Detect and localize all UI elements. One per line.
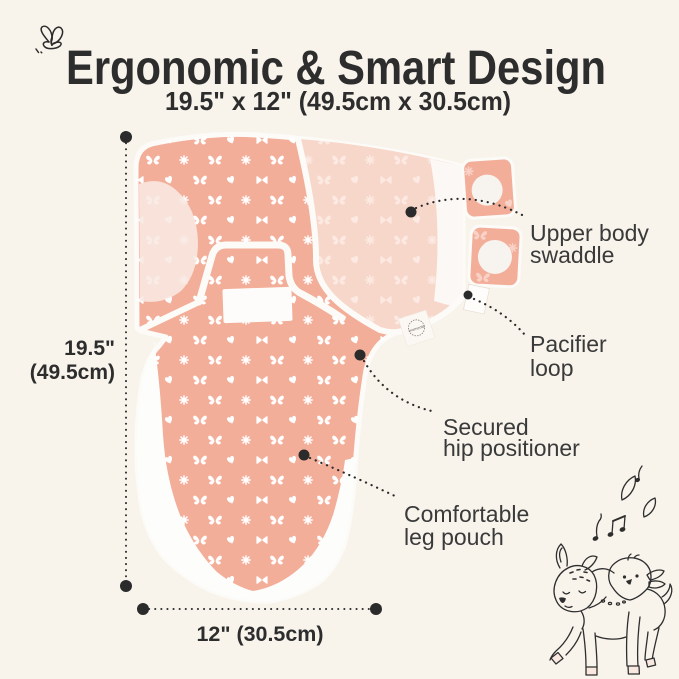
svg-text:Pacifier: Pacifier bbox=[530, 331, 607, 357]
svg-text:19.5" x 12" (49.5cm x 30.5cm): 19.5" x 12" (49.5cm x 30.5cm) bbox=[165, 86, 511, 116]
svg-text:(49.5cm): (49.5cm) bbox=[30, 361, 115, 384]
svg-text:19.5": 19.5" bbox=[64, 337, 115, 360]
svg-text:swaddle: swaddle bbox=[530, 242, 614, 268]
svg-text:leg pouch: leg pouch bbox=[404, 524, 504, 550]
svg-text:12" (30.5cm): 12" (30.5cm) bbox=[197, 623, 324, 646]
svg-text:loop: loop bbox=[530, 355, 573, 381]
svg-text:hip positioner: hip positioner bbox=[443, 435, 580, 461]
